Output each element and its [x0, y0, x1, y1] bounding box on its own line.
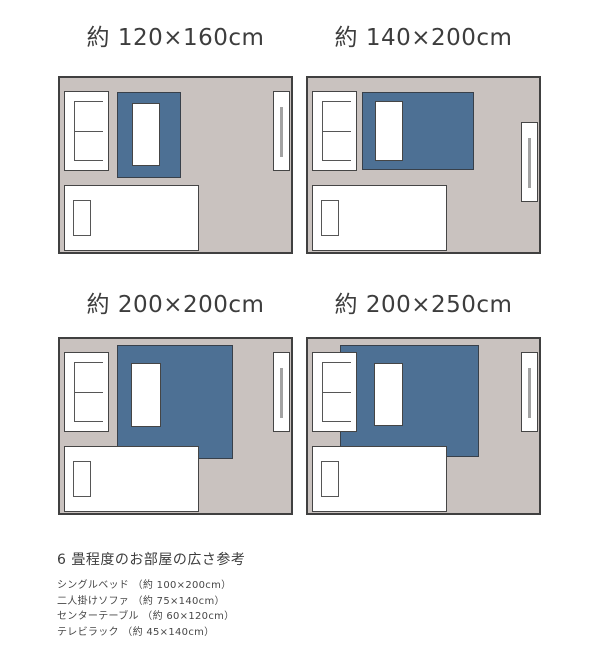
tv-screen-bar	[528, 138, 531, 188]
tv-rack	[273, 352, 290, 432]
tv-rack	[521, 352, 538, 432]
room-floor	[58, 76, 293, 254]
pillow	[73, 461, 91, 497]
legend-item-center-table: センターテーブル （約 60×120cm）	[57, 609, 537, 625]
sofa	[64, 352, 109, 432]
center-table	[375, 101, 403, 161]
legend-item-single-bed: シングルベッド （約 100×200cm）	[57, 578, 537, 594]
rug-size-guide: 約 120×160cm 約 140×200cm	[0, 0, 600, 650]
sofa-cushion-divider	[75, 392, 103, 393]
single-bed	[312, 185, 447, 251]
rug-size-title: 約 200×250cm	[306, 291, 541, 319]
furniture-size-list: シングルベッド （約 100×200cm） 二人掛けソファ （約 75×140c…	[57, 578, 537, 640]
sofa-seat-lines	[322, 362, 351, 422]
panel-140x200: 約 140×200cm	[306, 24, 541, 254]
tv-rack	[521, 122, 538, 202]
center-table	[131, 363, 161, 427]
tv-rack	[273, 91, 290, 171]
room-floor	[306, 76, 541, 254]
pillow	[321, 200, 339, 236]
rug-size-title: 約 120×160cm	[58, 24, 293, 52]
pillow	[73, 200, 91, 236]
panel-200x200: 約 200×200cm	[58, 291, 293, 515]
center-table	[132, 103, 160, 166]
sofa-seat-lines	[74, 101, 103, 161]
single-bed	[312, 446, 447, 512]
room-floor	[58, 337, 293, 515]
sofa-seat-lines	[74, 362, 103, 422]
legend-item-tv-rack: テレビラック （約 45×140cm）	[57, 625, 537, 641]
room-size-legend: 6 畳程度のお部屋の広さ参考 シングルベッド （約 100×200cm） 二人掛…	[57, 551, 537, 640]
sofa	[312, 352, 357, 432]
sofa	[312, 91, 357, 171]
center-table	[374, 363, 403, 426]
sofa-cushion-divider	[75, 131, 103, 132]
sofa-cushion-divider	[323, 392, 351, 393]
single-bed	[64, 185, 199, 251]
pillow	[321, 461, 339, 497]
panel-120x160: 約 120×160cm	[58, 24, 293, 254]
sofa-seat-lines	[322, 101, 351, 161]
tv-screen-bar	[280, 368, 283, 418]
rug	[340, 345, 479, 457]
tv-screen-bar	[280, 107, 283, 157]
sofa	[64, 91, 109, 171]
panel-200x250: 約 200×250cm	[306, 291, 541, 515]
room-floor	[306, 337, 541, 515]
legend-item-sofa: 二人掛けソファ （約 75×140cm）	[57, 594, 537, 610]
tv-screen-bar	[528, 368, 531, 418]
rug-size-title: 約 140×200cm	[306, 24, 541, 52]
sofa-cushion-divider	[323, 131, 351, 132]
rug-size-title: 約 200×200cm	[58, 291, 293, 319]
single-bed	[64, 446, 199, 512]
legend-heading: 6 畳程度のお部屋の広さ参考	[57, 551, 537, 569]
